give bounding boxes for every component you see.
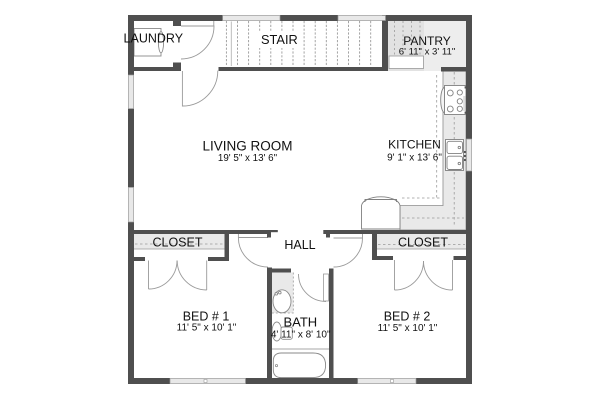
svg-text:11' 5" x 10' 1": 11' 5" x 10' 1": [177, 323, 237, 334]
svg-text:CLOSET: CLOSET: [398, 235, 448, 249]
svg-text:LAUNDRY: LAUNDRY: [124, 32, 184, 46]
svg-text:6' 11" x 3' 11": 6' 11" x 3' 11": [399, 47, 456, 58]
svg-text:11' 5" x 10' 1": 11' 5" x 10' 1": [378, 323, 438, 334]
svg-text:KITCHEN: KITCHEN: [388, 138, 441, 152]
svg-text:9' 1" x 13' 6": 9' 1" x 13' 6": [387, 153, 442, 164]
svg-text:BED # 2: BED # 2: [384, 310, 431, 324]
svg-text:CLOSET: CLOSET: [152, 235, 202, 249]
svg-text:BATH: BATH: [283, 315, 317, 330]
svg-text:LIVING ROOM: LIVING ROOM: [202, 139, 292, 154]
svg-text:4' 11" x 8' 10": 4' 11" x 8' 10": [271, 330, 331, 341]
svg-text:HALL: HALL: [284, 238, 315, 252]
svg-text:BED # 1: BED # 1: [183, 309, 230, 323]
svg-text:19' 5" x 13' 6": 19' 5" x 13' 6": [218, 153, 278, 164]
svg-text:STAIR: STAIR: [261, 32, 298, 47]
